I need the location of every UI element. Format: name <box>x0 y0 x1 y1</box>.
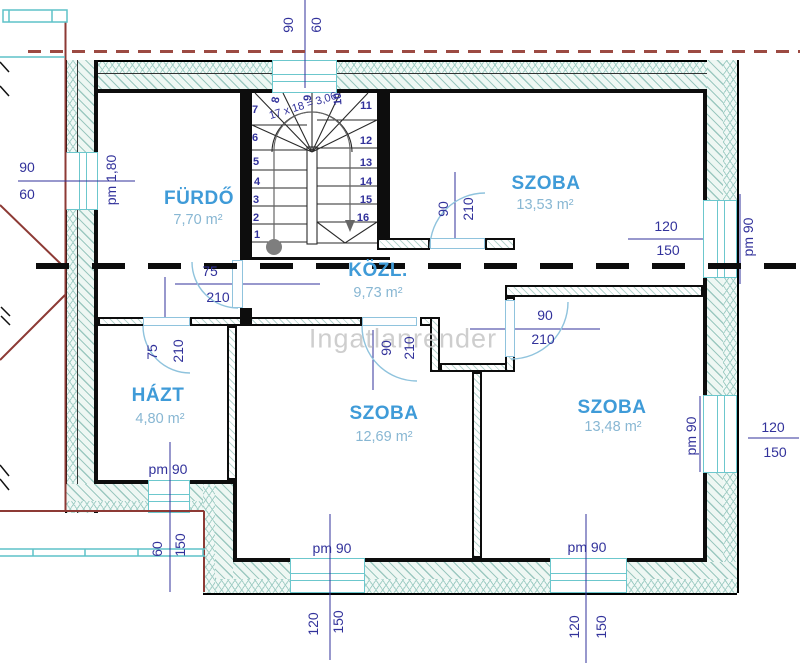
room-area-furdo: 7,70 m² <box>173 212 222 228</box>
dim-hazt-window-width: 60 <box>149 541 165 557</box>
stair-walking-line <box>266 112 355 255</box>
stair-step-5: 5 <box>253 156 259 168</box>
dim-right-window1-width: 120 <box>654 218 677 234</box>
room-name-szoba1: SZOBA <box>512 173 581 195</box>
dim-bottom-window2-height: 150 <box>593 615 609 638</box>
dim-hazt-door-width: 75 <box>144 344 160 360</box>
dim-szoba3-door-width: 90 <box>537 307 553 323</box>
dim-bottom-window1-width: 120 <box>305 612 321 635</box>
room-name-szoba3: SZOBA <box>578 397 647 419</box>
dim-right-window2-width: 120 <box>761 419 784 435</box>
dim-left-window-g: 60 <box>19 186 35 202</box>
floor-plan: Ingatlanrender FÜRDŐ 7,70 m² SZOBA 13,53… <box>0 0 800 664</box>
stair-step-2: 2 <box>253 212 259 224</box>
dim-bath-door-height: 210 <box>206 289 229 305</box>
dim-szoba1-door-width: 90 <box>435 201 451 217</box>
section-dashed-line <box>36 263 796 269</box>
dim-szoba2-door-height: 210 <box>401 336 417 359</box>
lower-floor-red-outline <box>0 22 204 592</box>
stair-step-14: 14 <box>360 176 372 188</box>
dim-right-window1-sill: pm 90 <box>740 218 756 257</box>
room-area-szoba3: 13,48 m² <box>584 419 641 435</box>
stair-step-4: 4 <box>254 176 260 188</box>
stair-step-6: 6 <box>252 132 258 144</box>
red-dashed-line <box>28 50 800 53</box>
room-name-hazt: HÁZT <box>132 385 185 407</box>
dim-szoba2-door-width: 90 <box>378 340 394 356</box>
room-area-hazt: 4,80 m² <box>135 411 184 427</box>
room-area-szoba2: 12,69 m² <box>355 429 412 445</box>
door-leaf-hazt <box>143 317 190 326</box>
dim-szoba3-door-height: 210 <box>531 331 554 347</box>
dim-hazt-window-height: 150 <box>172 533 188 556</box>
door-leaf-szoba3 <box>505 300 515 357</box>
stair-step-1: 1 <box>254 229 260 241</box>
dim-left-window-width: 90 <box>19 159 35 175</box>
dim-bottom-window2-sill: pm 90 <box>568 539 607 555</box>
room-name-szoba2: SZOBA <box>350 403 419 425</box>
stair-step-13: 13 <box>360 157 372 169</box>
room-area-kozl: 9,73 m² <box>353 285 402 301</box>
dim-bottom-window1-sill: pm 90 <box>313 540 352 556</box>
room-area-szoba1: 13,53 m² <box>516 197 573 213</box>
dim-bottom-window2-width: 120 <box>566 615 582 638</box>
dim-hazt-door-height: 210 <box>170 339 186 362</box>
dim-bath-door-width: 75 <box>202 263 218 279</box>
stair-start-dot <box>266 239 282 255</box>
dim-hazt-window-sill: pm 90 <box>149 461 188 477</box>
dim-right-window1-height: 150 <box>656 242 679 258</box>
stair-step-12: 12 <box>360 135 372 147</box>
dim-right-window2-height: 150 <box>763 444 786 460</box>
dim-bottom-window1-height: 150 <box>330 610 346 633</box>
stair-step-3: 3 <box>253 194 259 206</box>
dim-left-window-sill: pm 1,80 <box>103 155 119 206</box>
room-name-kozl: KÖZL. <box>348 260 408 282</box>
stair-step-15: 15 <box>360 194 372 206</box>
dim-right-window2-sill: pm 90 <box>683 417 699 456</box>
room-name-furdo: FÜRDŐ <box>164 188 234 210</box>
stair-step-11: 11 <box>360 100 372 112</box>
left-edge-marks <box>0 62 10 490</box>
dim-top-window-g: 60 <box>308 17 324 33</box>
stair-step-7: 7 <box>252 104 258 116</box>
stair-step-16: 16 <box>357 212 369 224</box>
dim-szoba1-door-height: 210 <box>460 197 476 220</box>
door-leaf-szoba1 <box>430 238 485 249</box>
dim-top-window-width: 90 <box>280 17 296 33</box>
